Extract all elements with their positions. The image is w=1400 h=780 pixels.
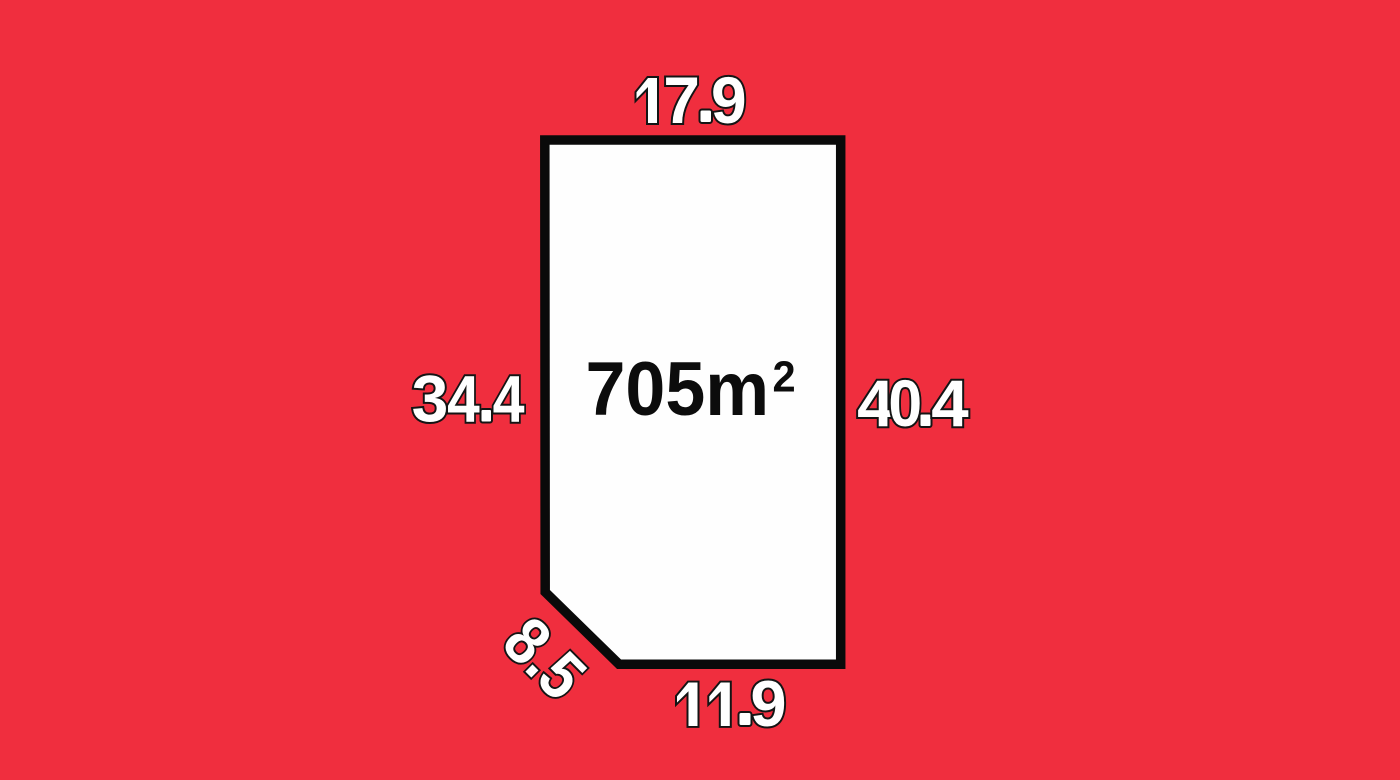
svg-text:3: 3 — [412, 362, 449, 436]
svg-text:4: 4 — [931, 368, 968, 441]
svg-text:9: 9 — [750, 667, 786, 740]
svg-text:4: 4 — [493, 363, 525, 437]
svg-text:0: 0 — [888, 368, 922, 441]
svg-text:705m2: 705m2 — [586, 346, 796, 431]
svg-text:7: 7 — [663, 63, 700, 137]
svg-text:4: 4 — [447, 362, 480, 436]
svg-text:9: 9 — [711, 63, 747, 137]
